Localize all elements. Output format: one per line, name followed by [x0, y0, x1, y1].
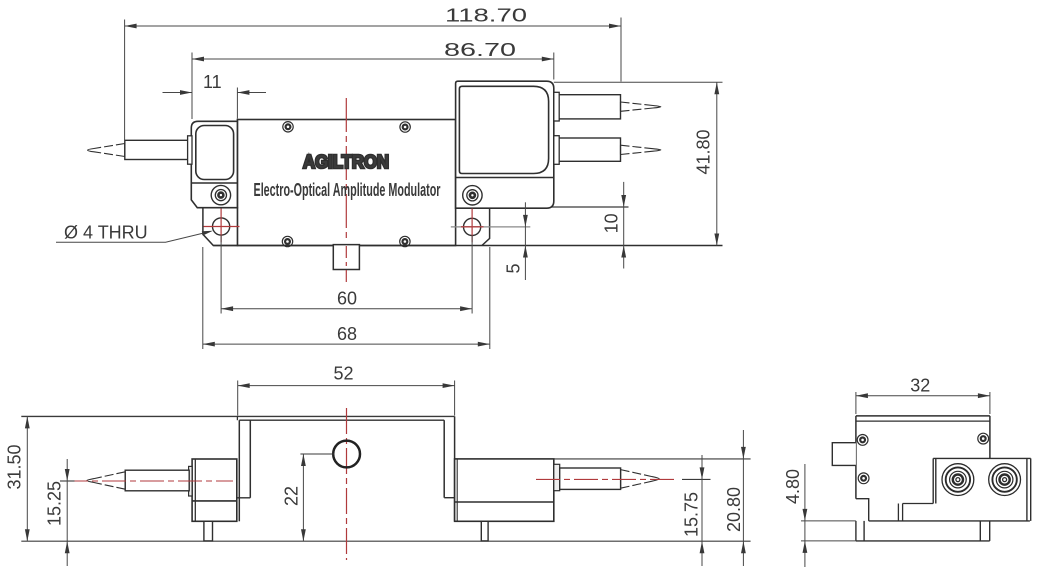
svg-text:AGILTRON: AGILTRON — [303, 152, 389, 172]
svg-text:4.80: 4.80 — [783, 469, 803, 504]
svg-text:15.25: 15.25 — [45, 481, 65, 526]
svg-text:32: 32 — [910, 376, 930, 396]
svg-text:118.70: 118.70 — [445, 6, 527, 26]
svg-text:5: 5 — [504, 263, 524, 273]
svg-text:41.80: 41.80 — [694, 129, 714, 174]
svg-text:60: 60 — [337, 289, 357, 309]
svg-text:10: 10 — [602, 213, 622, 233]
svg-text:Ø 4 THRU: Ø 4 THRU — [64, 223, 148, 243]
svg-text:15.75: 15.75 — [682, 492, 702, 537]
svg-text:22: 22 — [282, 486, 302, 506]
svg-text:52: 52 — [333, 364, 353, 384]
svg-text:Electro-Optical Amplitude Modu: Electro-Optical Amplitude Modulator — [254, 180, 441, 200]
svg-text:86.70: 86.70 — [444, 40, 516, 60]
svg-text:20.80: 20.80 — [724, 487, 744, 532]
svg-text:68: 68 — [337, 324, 357, 344]
svg-text:11: 11 — [203, 72, 222, 92]
svg-text:31.50: 31.50 — [5, 444, 25, 489]
